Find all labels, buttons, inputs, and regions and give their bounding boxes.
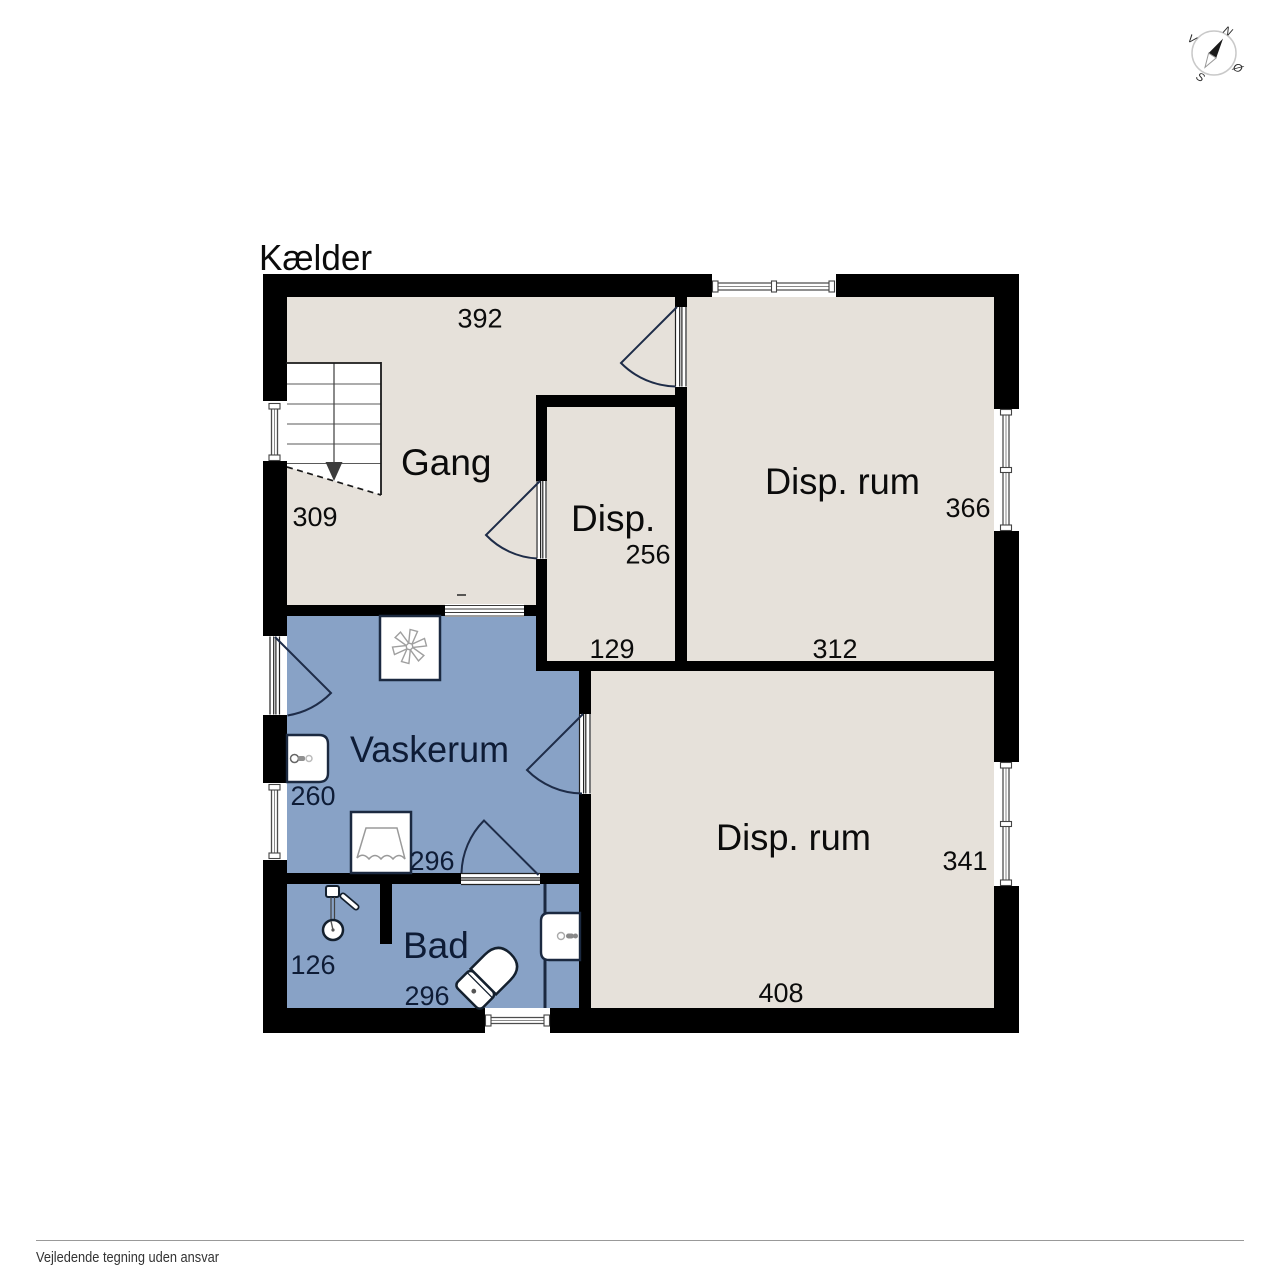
- svg-text:Vejledende tegning uden ansvar: Vejledende tegning uden ansvar: [36, 1249, 219, 1266]
- svg-text:309: 309: [292, 502, 337, 532]
- svg-text:408: 408: [758, 978, 803, 1008]
- svg-text:296: 296: [404, 981, 449, 1011]
- svg-text:260: 260: [290, 781, 335, 811]
- svg-text:Bad: Bad: [403, 925, 469, 966]
- svg-text:Disp. rum: Disp. rum: [765, 461, 920, 502]
- svg-text:129: 129: [589, 634, 634, 664]
- svg-text:Disp.: Disp.: [571, 498, 655, 539]
- svg-text:296: 296: [409, 846, 454, 876]
- svg-text:Kælder: Kælder: [259, 237, 372, 278]
- svg-text:366: 366: [945, 493, 990, 523]
- svg-text:126: 126: [290, 950, 335, 980]
- svg-text:Disp. rum: Disp. rum: [716, 817, 871, 858]
- svg-text:392: 392: [457, 304, 502, 334]
- svg-text:Gang: Gang: [401, 442, 492, 483]
- svg-text:256: 256: [625, 540, 670, 570]
- svg-text:Vaskerum: Vaskerum: [350, 729, 509, 770]
- svg-text:312: 312: [812, 634, 857, 664]
- svg-text:341: 341: [942, 846, 987, 876]
